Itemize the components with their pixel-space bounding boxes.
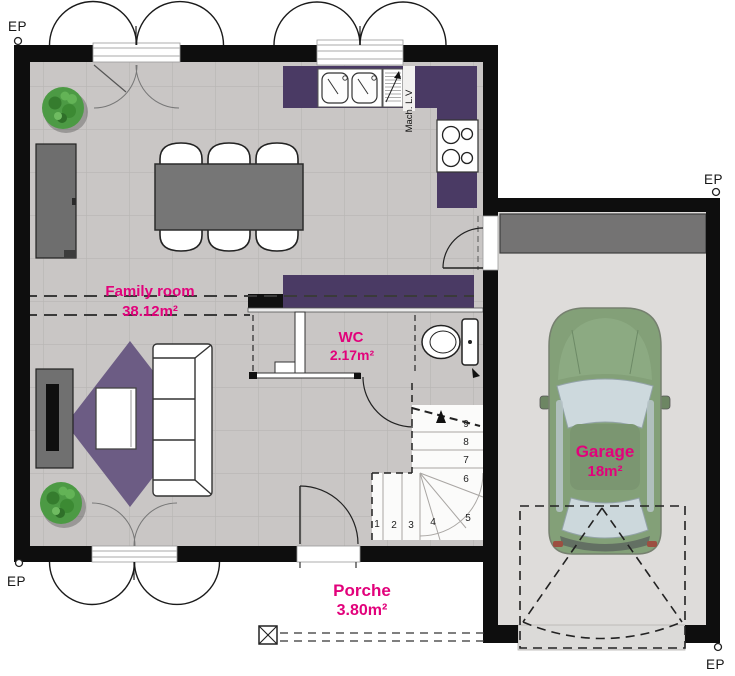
tv-unit [36,369,73,468]
dining-table [155,164,303,230]
wall-cap [354,373,361,379]
dishwasher-icon [383,69,403,107]
wc-cupboard [283,275,474,308]
step-number: 2 [391,520,397,531]
wc-wall-notch [275,362,295,373]
downspout-icon [713,189,720,196]
floor-plan-drawing: 1 2 3 4 5 6 7 8 9 [0,0,735,676]
garage-label: Garage [576,442,635,461]
wc-area: 2.17m² [330,347,375,363]
step-number: 4 [430,517,436,528]
step-number: 8 [463,437,469,448]
ep-label: EP [704,172,723,187]
porch-label: Porche [333,581,391,600]
east-wall-lower [483,270,498,643]
west-wall [14,45,30,562]
wall-cap [249,372,257,379]
car-icon [540,308,670,554]
sofa [153,344,212,496]
step-number: 6 [463,474,469,485]
downspout-icon [15,38,22,45]
step-number: 5 [465,513,471,524]
garage-north-wall [483,198,720,212]
dishwasher-label: Mach. L.V [404,89,415,132]
storage-shelf [500,214,706,253]
wc-north-wall [248,308,483,312]
step-number: 7 [463,455,469,466]
cooktop-icon [437,120,478,172]
wc-south-wall [250,373,360,378]
ep-label: EP [706,657,725,672]
east-wall-upper [483,45,498,216]
downspout-icon [16,560,23,567]
downspout-icon [715,644,722,651]
drain-icon [259,626,277,644]
family-room-label: Family room [105,283,194,300]
step-number: 3 [408,520,414,531]
step-number: 9 [463,419,469,430]
garage-east-wall [706,212,720,643]
floor-plan: 1 2 3 4 5 6 7 8 9 [0,0,735,676]
wc-partition-wall [295,312,305,373]
ep-label: EP [8,19,27,34]
step-number: 1 [374,519,380,530]
tv [46,384,59,451]
sink-icon [318,69,382,107]
sideboard [36,144,76,258]
family-room-area: 38.12m² [122,303,178,320]
coffee-table [96,388,136,449]
dining-set [155,143,303,251]
garage-area: 18m² [587,463,622,480]
porch-area: 3.80m² [337,602,388,619]
ep-label: EP [7,574,26,589]
wc-label: WC [339,329,364,346]
